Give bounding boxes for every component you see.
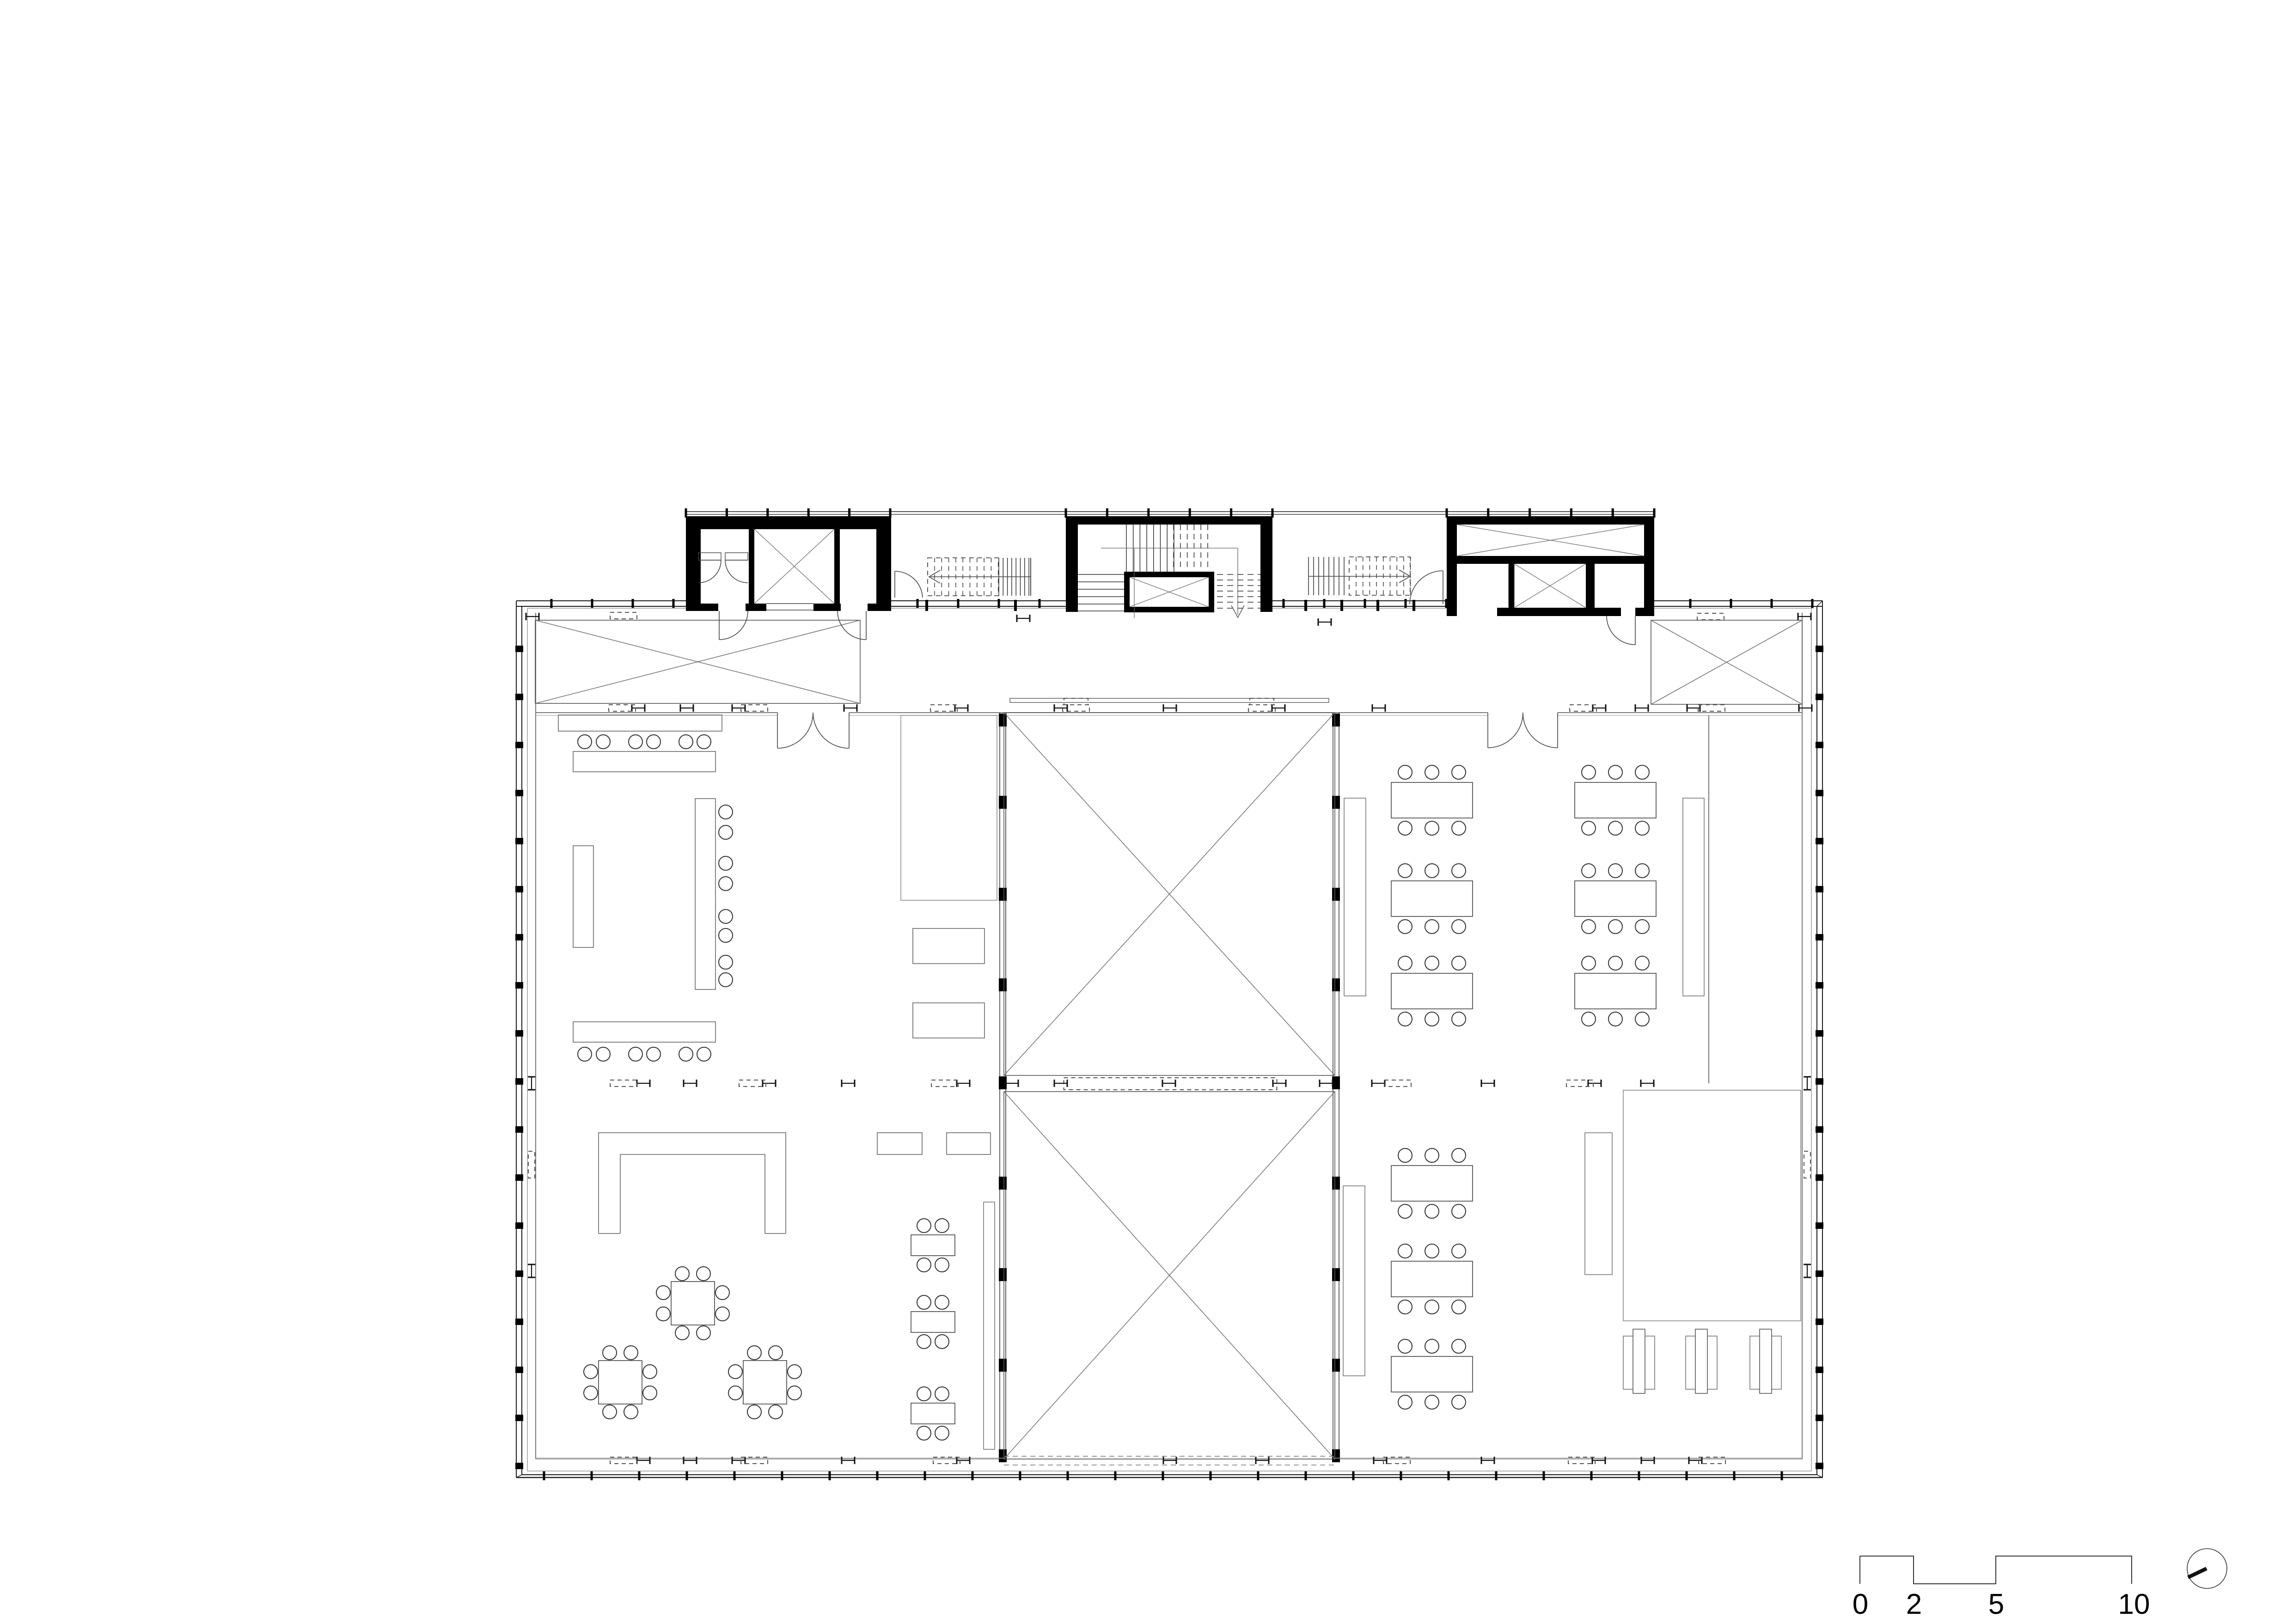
- svg-text:2: 2: [1906, 1588, 1922, 1620]
- svg-text:5: 5: [1988, 1588, 2004, 1620]
- svg-text:0: 0: [1853, 1588, 1868, 1620]
- svg-text:10: 10: [2118, 1588, 2150, 1620]
